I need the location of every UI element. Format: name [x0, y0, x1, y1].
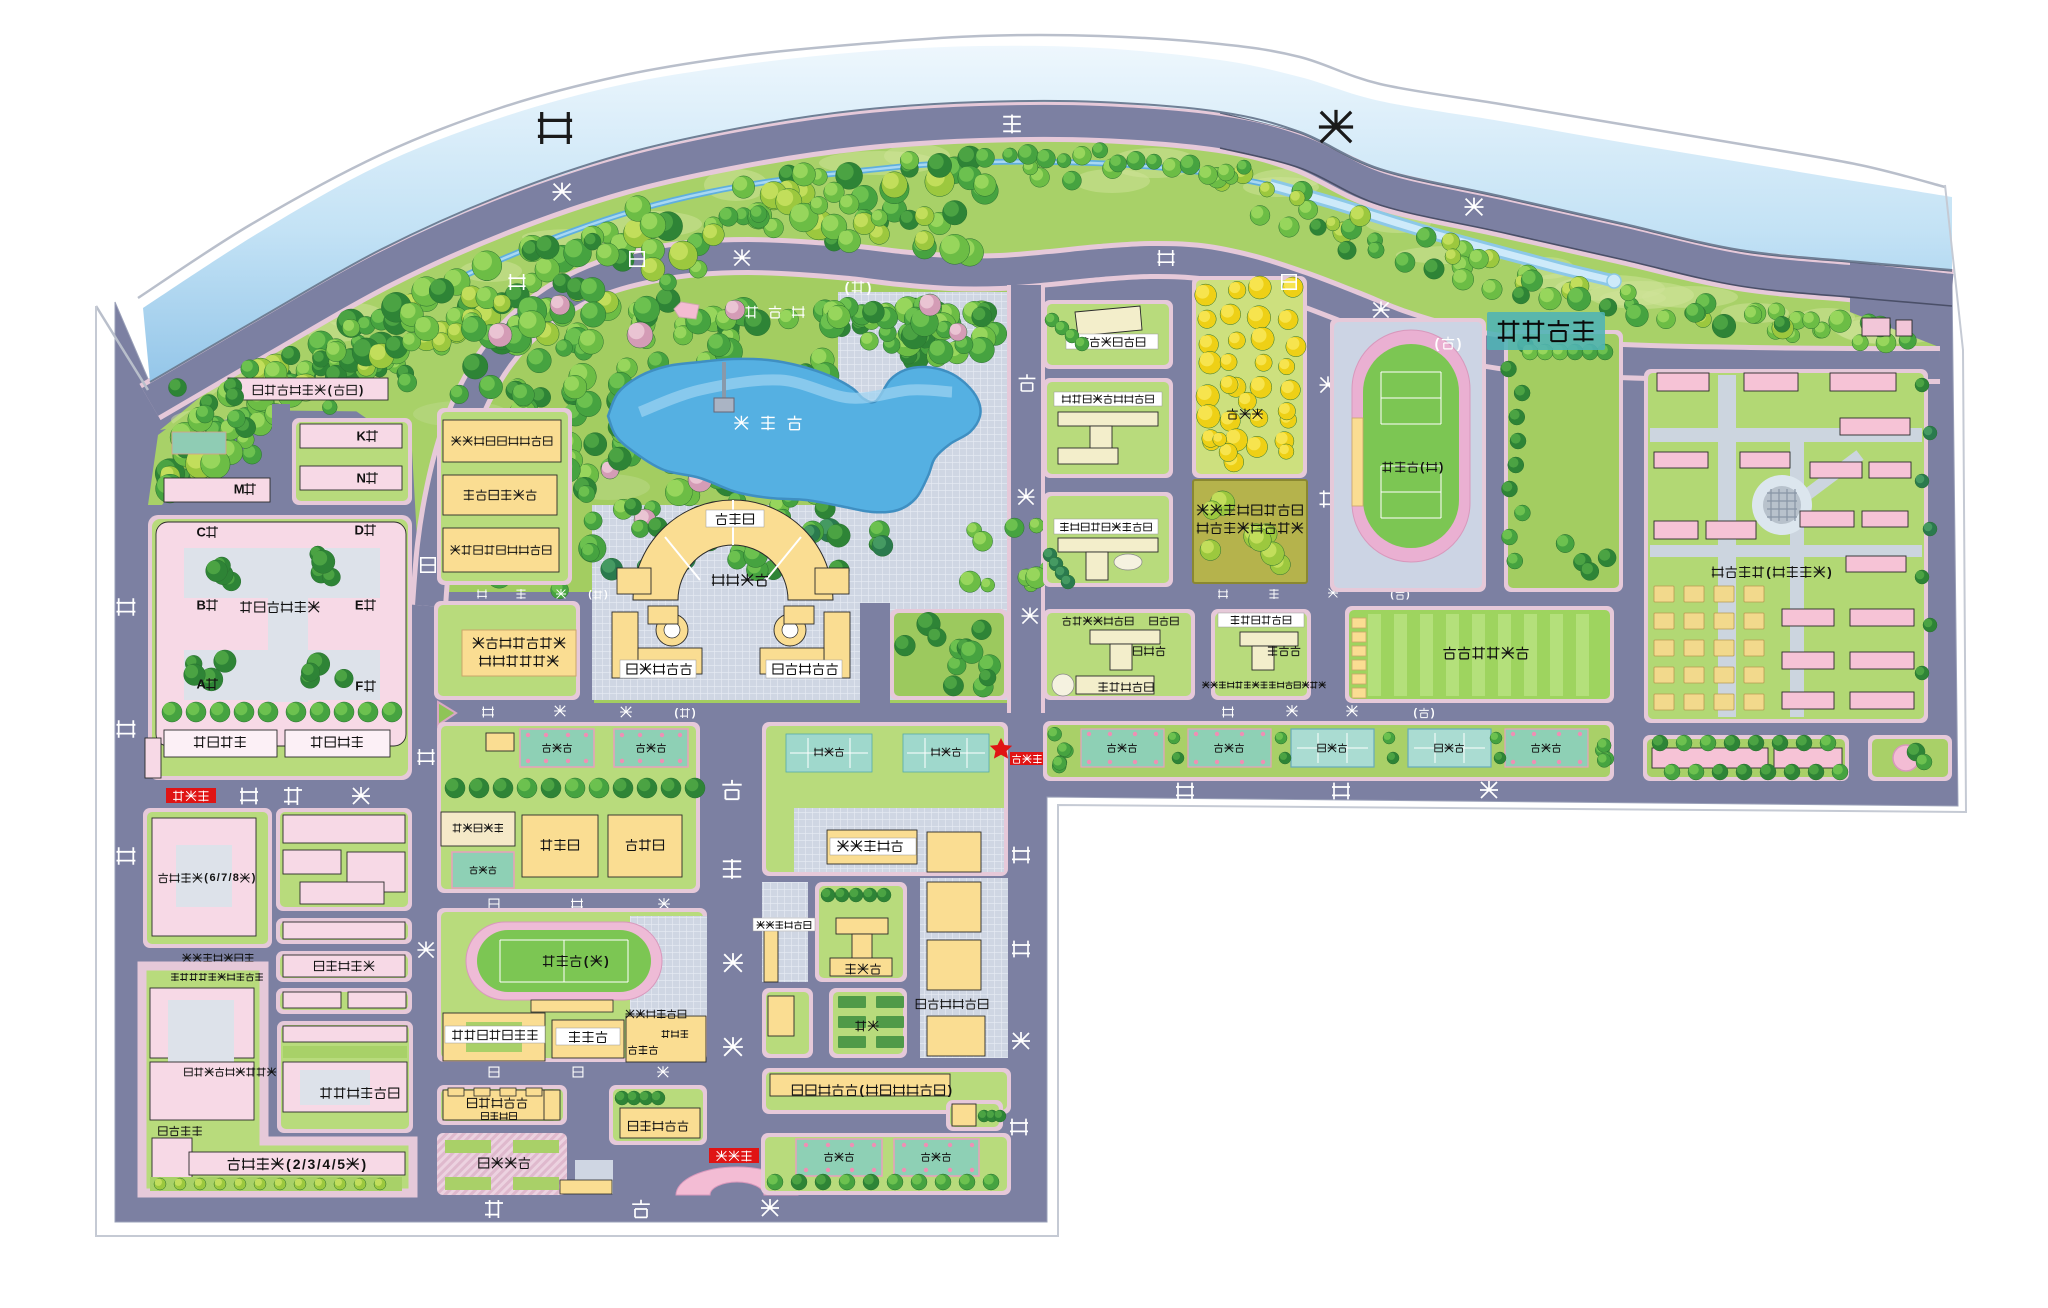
svg-text:(: (: [845, 279, 850, 295]
svg-text:(: (: [1420, 460, 1424, 474]
svg-text:): ): [867, 279, 872, 295]
svg-text:8: 8: [233, 872, 239, 884]
svg-text:(: (: [584, 954, 589, 969]
svg-text:4: 4: [322, 1156, 330, 1172]
svg-text:): ): [604, 954, 608, 969]
svg-text:(: (: [1766, 565, 1771, 580]
svg-text:(: (: [328, 383, 332, 397]
svg-text:(: (: [286, 1156, 291, 1172]
svg-text:B: B: [197, 598, 206, 613]
svg-text:/: /: [217, 872, 220, 884]
svg-text:): ): [948, 1083, 952, 1098]
svg-text:/: /: [228, 872, 231, 884]
svg-text:K: K: [357, 429, 367, 444]
svg-text:): ): [1431, 707, 1435, 719]
svg-text:(: (: [860, 1083, 865, 1098]
svg-text:): ): [1457, 335, 1462, 351]
svg-text:): ): [361, 1156, 366, 1172]
svg-text:): ): [359, 383, 363, 397]
svg-text:3: 3: [308, 1156, 316, 1172]
svg-text:(: (: [1435, 335, 1440, 351]
svg-text:5: 5: [337, 1156, 345, 1172]
svg-text:): ): [1439, 460, 1443, 474]
svg-text:): ): [1827, 565, 1831, 580]
svg-text:): ): [252, 872, 256, 884]
svg-text:/: /: [317, 1156, 321, 1172]
svg-text:F: F: [355, 679, 363, 694]
svg-text:A: A: [197, 677, 207, 692]
svg-text:/: /: [332, 1156, 336, 1172]
svg-text:/: /: [302, 1156, 306, 1172]
svg-text:D: D: [355, 523, 364, 538]
svg-text:M: M: [234, 482, 245, 497]
svg-text:N: N: [357, 471, 366, 486]
svg-text:(: (: [204, 872, 208, 884]
svg-text:(: (: [1413, 707, 1417, 719]
svg-text:2: 2: [293, 1156, 301, 1172]
svg-text:): ): [692, 707, 696, 719]
svg-text:): ): [604, 590, 607, 601]
svg-text:(: (: [674, 707, 678, 719]
svg-text:7: 7: [221, 872, 227, 884]
svg-text:6: 6: [209, 872, 215, 884]
svg-text:C: C: [197, 525, 207, 540]
svg-text:E: E: [355, 598, 364, 613]
